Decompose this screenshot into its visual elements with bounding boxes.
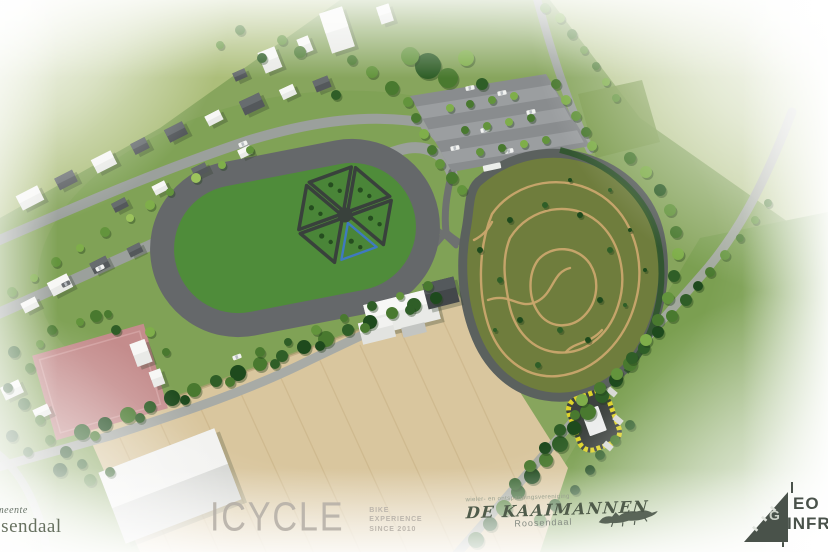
aerial-site-plan: gemeente Roosendaal ICYCLE BIKE EXPERIEN… bbox=[0, 0, 828, 552]
site-plan-render bbox=[0, 0, 828, 552]
vignette-overlay bbox=[0, 0, 828, 552]
